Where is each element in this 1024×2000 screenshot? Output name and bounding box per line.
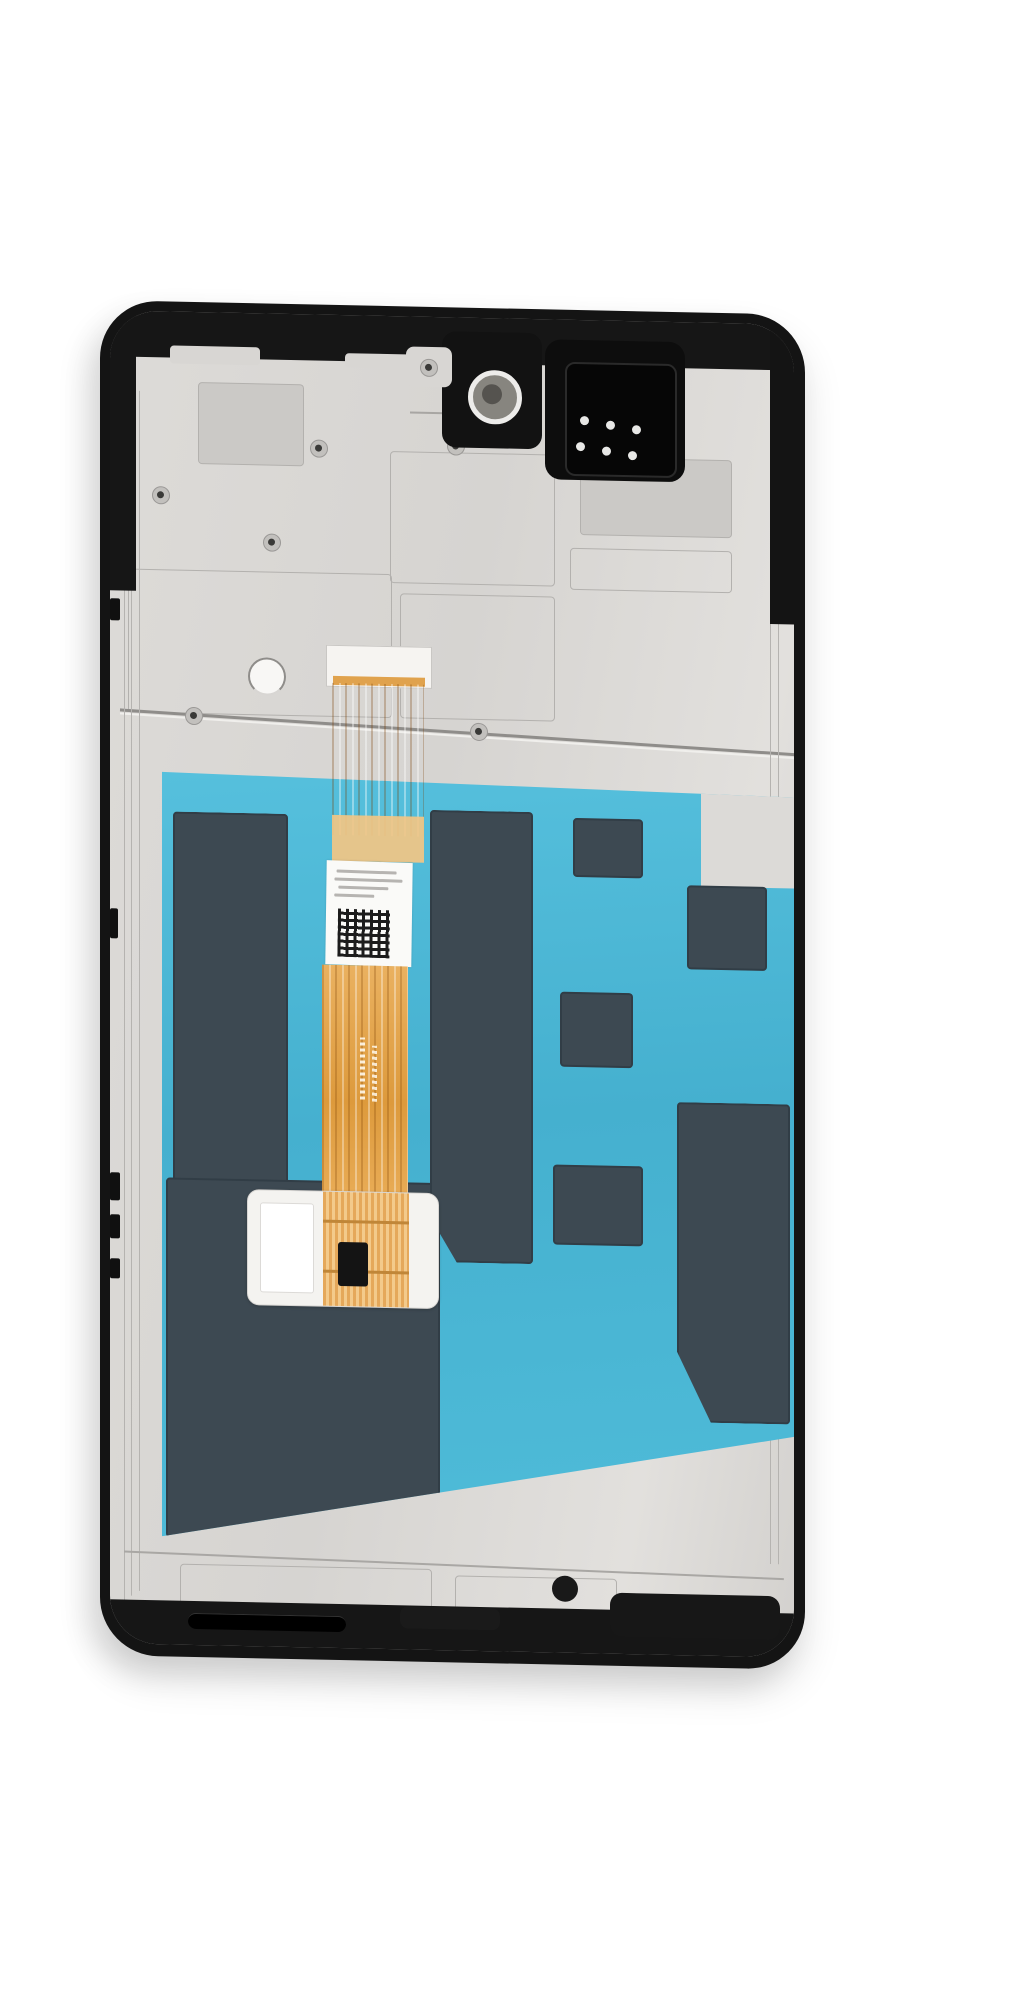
graphite-pad xyxy=(560,992,633,1069)
graphite-pad xyxy=(687,885,767,971)
label-text-line xyxy=(338,886,388,891)
rail-line xyxy=(139,391,140,1591)
screw-hole xyxy=(310,439,328,457)
etched-outline xyxy=(570,548,732,593)
shield-plate xyxy=(110,310,794,1657)
edge-nub xyxy=(110,908,118,938)
graphite-pad xyxy=(573,818,643,878)
flex-marking-text xyxy=(360,1037,365,1099)
etched-tab xyxy=(198,382,304,466)
adhesive-residue xyxy=(400,1606,500,1630)
graphite-pad-right-block xyxy=(677,1102,790,1424)
bottom-screw-hole xyxy=(552,1575,578,1602)
plate-tab xyxy=(345,353,415,368)
plate-tab xyxy=(170,345,260,365)
edge-nub xyxy=(110,1258,120,1278)
contact-dot xyxy=(606,421,615,430)
microphone-slot xyxy=(188,1613,346,1632)
qr-label xyxy=(325,860,412,967)
right-bezel-top xyxy=(770,324,794,625)
contact-dot xyxy=(632,425,641,434)
flex-ribbon-lower xyxy=(322,965,408,1195)
screw-hole xyxy=(185,707,203,725)
label-text-line xyxy=(334,877,402,882)
graphite-pad xyxy=(553,1164,643,1246)
camera-opening xyxy=(442,331,542,449)
screw-hole xyxy=(263,533,281,551)
left-bezel-top xyxy=(110,310,136,591)
graphite-pad-center-column xyxy=(430,810,533,1264)
phone-lcd-assembly xyxy=(100,300,805,1670)
plate-seam-highlight xyxy=(120,712,794,760)
flex-ribbon-light-band xyxy=(332,815,424,863)
adhesive-residue xyxy=(610,1593,780,1641)
edge-nub xyxy=(110,1172,120,1200)
contact-dot xyxy=(576,442,585,451)
flex-traces xyxy=(322,965,408,1195)
product-photo-scene xyxy=(0,0,1024,2000)
flex-traces xyxy=(332,683,424,837)
contact-dot xyxy=(580,416,589,425)
plate-notch xyxy=(701,779,794,889)
protective-film xyxy=(162,767,794,1552)
flex-marking-text xyxy=(372,1046,377,1102)
edge-nub xyxy=(110,598,120,620)
contact-dot xyxy=(628,451,637,460)
camera-lens xyxy=(482,384,502,404)
screw-hole xyxy=(420,359,438,377)
screw-hole xyxy=(152,486,170,504)
foam-pad xyxy=(247,1189,439,1309)
etched-outline xyxy=(390,451,555,586)
label-text-line xyxy=(334,893,374,897)
contact-dot xyxy=(602,447,611,456)
flex-ribbon-upper xyxy=(332,683,424,837)
qr-code xyxy=(337,909,390,959)
edge-nub xyxy=(110,1214,120,1238)
driver-ic-chip xyxy=(338,1242,368,1287)
screw-hole xyxy=(470,723,488,741)
plate-hole xyxy=(248,657,286,696)
foam-pad-window xyxy=(260,1202,314,1293)
label-text-line xyxy=(337,869,397,874)
earpiece-box xyxy=(545,339,685,482)
